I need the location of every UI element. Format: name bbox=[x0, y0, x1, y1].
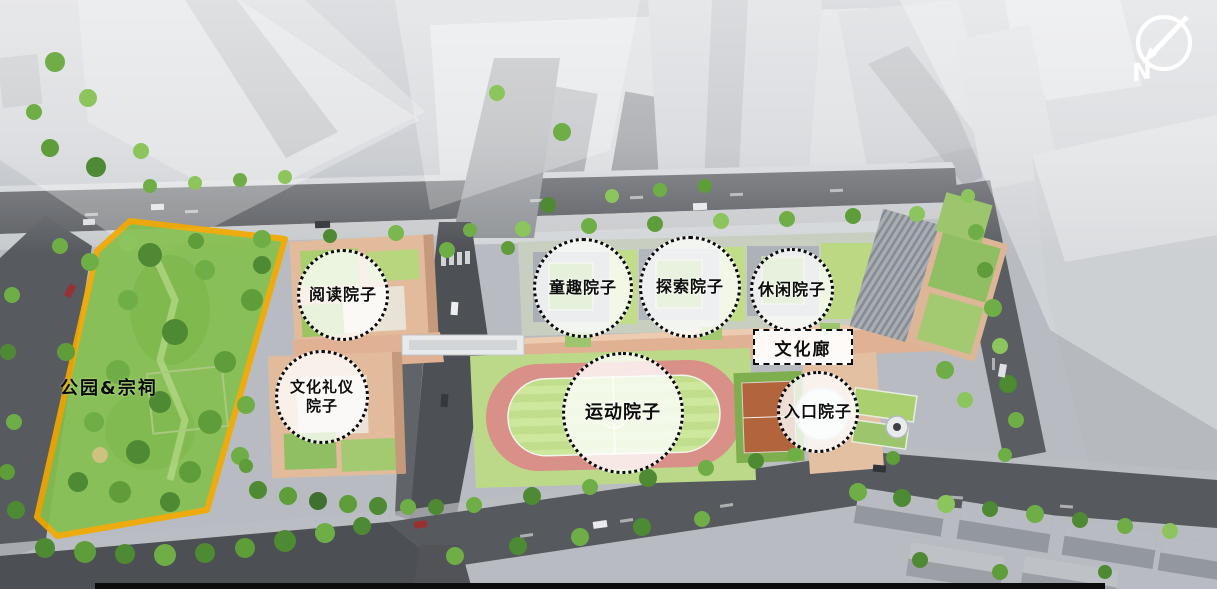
culture-corridor-label: 文化廊 bbox=[753, 329, 853, 365]
zone-circle-leisure-courtyard: 休闲院子 bbox=[750, 248, 834, 332]
aerial-site-plan: 公园&宗祠 阅读院子 童趣院子 探索院子 休闲院子 文化礼仪 院子 运动院子 入… bbox=[0, 0, 1217, 589]
north-compass: N bbox=[1124, 4, 1210, 90]
zone-circle-entrance-courtyard: 入口院子 bbox=[777, 371, 859, 453]
zone-circle-reading-courtyard: 阅读院子 bbox=[297, 249, 389, 341]
zone-circle-exploration-courtyard: 探索院子 bbox=[639, 236, 741, 338]
zone-circle-culture-etiquette-courtyard: 文化礼仪 院子 bbox=[275, 350, 369, 444]
zone-label-park: 公园&宗祠 bbox=[60, 374, 158, 400]
north-arrow-icon: N bbox=[1124, 4, 1210, 90]
bottom-edge-bar bbox=[95, 583, 1105, 589]
footbridge bbox=[402, 335, 524, 355]
zone-circle-childhood-fun-courtyard: 童趣院子 bbox=[533, 238, 633, 338]
zone-circle-sports-courtyard: 运动院子 bbox=[562, 352, 684, 474]
